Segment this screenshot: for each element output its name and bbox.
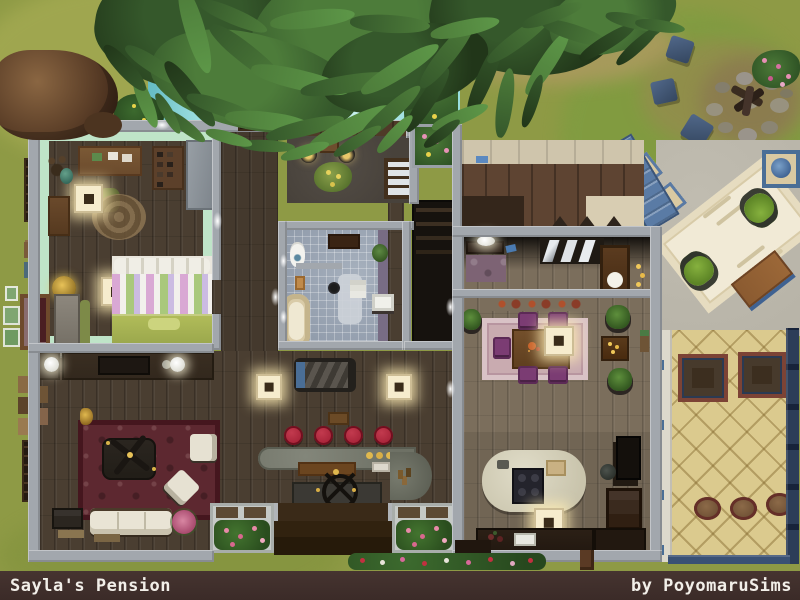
garden-planter[interactable]: [738, 352, 786, 398]
dining-light[interactable]: [544, 326, 574, 356]
wall-lamp[interactable]: [271, 288, 280, 306]
soap-box[interactable]: [295, 276, 305, 290]
potted-plant[interactable]: [608, 368, 632, 391]
island-stove[interactable]: [512, 468, 544, 504]
bed-striped-blanket: [112, 274, 212, 314]
wall-sconce-candles[interactable]: [636, 264, 641, 269]
shower-drain[interactable]: [328, 282, 340, 294]
armchair[interactable]: [190, 434, 217, 461]
tree-root: [84, 112, 122, 138]
wall-lamp[interactable]: [213, 212, 222, 230]
wall-bath-north: [278, 221, 414, 230]
ceiling-light[interactable]: [44, 357, 59, 372]
lot-title: Sayla's Pension: [10, 571, 171, 600]
planter-flowers[interactable]: [396, 520, 452, 550]
caption-bar: Sayla's Pension by PoyomaruSims: [0, 571, 800, 600]
coat-rack[interactable]: [48, 196, 70, 236]
green-vase[interactable]: [60, 168, 73, 184]
fence-bottom: [668, 555, 790, 564]
flowers-pond-right: [416, 62, 421, 67]
bedroom-desk[interactable]: [78, 146, 142, 176]
saxophone[interactable]: [80, 408, 93, 425]
flower-dots: [224, 528, 229, 533]
wheel-gold-dots: [333, 469, 339, 475]
wall-bedroom-east: [212, 132, 221, 350]
hall-north-window: [238, 121, 264, 131]
wall-lamp[interactable]: [154, 120, 170, 130]
pond-sparkles: [300, 85, 304, 89]
entry-plant[interactable]: [314, 162, 352, 192]
porch-steps: [274, 503, 392, 555]
cacti-wall-frames[interactable]: [5, 286, 18, 301]
flowerbed-dots: [360, 558, 365, 563]
towel-stack[interactable]: [350, 280, 366, 298]
reception-light[interactable]: [477, 236, 495, 246]
bar-stool[interactable]: [314, 426, 333, 445]
kitchen-hutch[interactable]: [606, 488, 642, 530]
recessed-light[interactable]: [256, 374, 282, 400]
entry-plant-flowers: [326, 170, 331, 175]
deck-towel[interactable]: [476, 156, 488, 163]
porch-ceiling-lamp[interactable]: [338, 146, 355, 163]
wing-wall-east: [650, 226, 662, 562]
shoes: [157, 152, 163, 157]
lamp-core: [395, 383, 404, 392]
trash-bin[interactable]: [600, 464, 616, 480]
dirt-patch-top: [430, 5, 680, 85]
stove-burners: [518, 474, 526, 482]
keg[interactable]: [372, 462, 390, 472]
flowers-ne: [422, 134, 427, 139]
flowerbed-bottom[interactable]: [348, 553, 546, 570]
bathroom-halfwall: [296, 263, 342, 269]
dining-chair[interactable]: [548, 366, 568, 384]
wall-bath-west: [278, 221, 287, 350]
porch-wall-frame[interactable]: [320, 140, 339, 153]
wall-lamp[interactable]: [446, 380, 455, 398]
planter-flowers[interactable]: [214, 520, 270, 550]
sofa-cushion-line: [117, 512, 119, 530]
floral-panel[interactable]: [466, 255, 506, 282]
bedroom-door-gap[interactable]: [212, 280, 221, 314]
tv-cabinet[interactable]: [616, 436, 641, 480]
wing-doorstep: [455, 540, 491, 553]
bathtub-basin: [289, 302, 304, 340]
wall-table[interactable]: [390, 452, 432, 500]
pink-flower-plant[interactable]: [172, 510, 196, 534]
wall-south-left: [28, 550, 214, 562]
dining-cabinet[interactable]: [601, 336, 629, 361]
dining-chair[interactable]: [493, 337, 511, 359]
wall-bath-south: [278, 341, 414, 350]
deck-ledge: [462, 140, 644, 164]
accent-runner-rug[interactable]: [492, 297, 586, 311]
wall-lamp[interactable]: [280, 254, 287, 268]
deck-table[interactable]: [188, 48, 214, 64]
bar-stool[interactable]: [344, 426, 363, 445]
bathroom-sink[interactable]: [372, 294, 394, 311]
bed-pillows: [114, 258, 210, 274]
suitcase[interactable]: [328, 412, 349, 425]
bar-stool[interactable]: [284, 426, 303, 445]
planter-soil: [398, 507, 420, 518]
potted-plant[interactable]: [606, 305, 630, 329]
table-flowers[interactable]: [528, 342, 536, 350]
kitchenette-stove[interactable]: [98, 356, 150, 375]
porch-ceiling-lamp[interactable]: [300, 146, 317, 163]
dining-wall-art[interactable]: [640, 330, 649, 352]
flowers-left: [132, 104, 136, 108]
wing-corridor-wall: [452, 289, 662, 298]
clay-pot[interactable]: [694, 497, 721, 520]
dining-chair[interactable]: [518, 312, 538, 330]
sims-floorplan-screenshot: Sayla's Pension by PoyomaruSims: [0, 0, 800, 600]
clock-face: [607, 272, 623, 288]
wardrobe[interactable]: [186, 140, 214, 210]
dining-chair[interactable]: [518, 366, 538, 384]
creator-credit: by PoyomaruSims: [631, 571, 792, 600]
flower-bush-topright[interactable]: [752, 50, 800, 88]
wall-west: [28, 120, 40, 562]
lamp-core: [265, 383, 274, 392]
flowers-topright: [762, 58, 767, 63]
fence-post: [580, 550, 594, 570]
flower-dots: [406, 528, 411, 533]
potted-plant[interactable]: [462, 309, 481, 330]
recessed-light[interactable]: [386, 374, 412, 400]
bathroom-dresser[interactable]: [328, 234, 360, 249]
pond-duck[interactable]: [382, 92, 393, 101]
island-sink[interactable]: [497, 460, 509, 469]
closet-room: [412, 200, 456, 350]
bed-green-pillow: [148, 318, 180, 330]
bottles: [398, 470, 403, 479]
cutting-board[interactable]: [546, 460, 566, 476]
cabinet-candles: [608, 342, 612, 346]
porch-post: [280, 119, 289, 138]
paper-floor-lamp[interactable]: [74, 184, 103, 213]
blue-pot[interactable]: [771, 158, 791, 178]
wall-lamp[interactable]: [446, 298, 455, 316]
clay-pot[interactable]: [730, 497, 757, 520]
treadmill-towel: [296, 362, 305, 388]
treadmill-belt: [302, 362, 348, 388]
kitchen-sink[interactable]: [514, 533, 536, 546]
porch-back-deck: [284, 121, 410, 136]
garden-planter[interactable]: [678, 354, 728, 402]
wall-bath-east: [402, 221, 411, 350]
lamp-core: [544, 518, 554, 528]
hallway-floor: [221, 132, 278, 353]
campfire-chair[interactable]: [650, 78, 678, 105]
wall-bedroom-south: [28, 343, 214, 353]
closet-shelves[interactable]: [416, 208, 452, 212]
sofa[interactable]: [90, 508, 172, 535]
ceiling-light[interactable]: [170, 357, 185, 372]
storage-trunk[interactable]: [52, 508, 83, 529]
planter-soil: [216, 507, 238, 518]
fence-right: [786, 328, 799, 564]
bar-stool[interactable]: [374, 426, 393, 445]
lamp-core: [554, 336, 564, 346]
candles: [127, 452, 133, 458]
lamp-core: [84, 194, 94, 204]
beer-taps[interactable]: [366, 452, 373, 459]
wall-lamp[interactable]: [280, 310, 287, 324]
wall-east-upper: [452, 124, 462, 238]
door-mats: [58, 530, 84, 538]
wing-wall-north: [452, 226, 662, 237]
bathroom-plant[interactable]: [372, 244, 388, 262]
desk-papers: [108, 152, 118, 160]
